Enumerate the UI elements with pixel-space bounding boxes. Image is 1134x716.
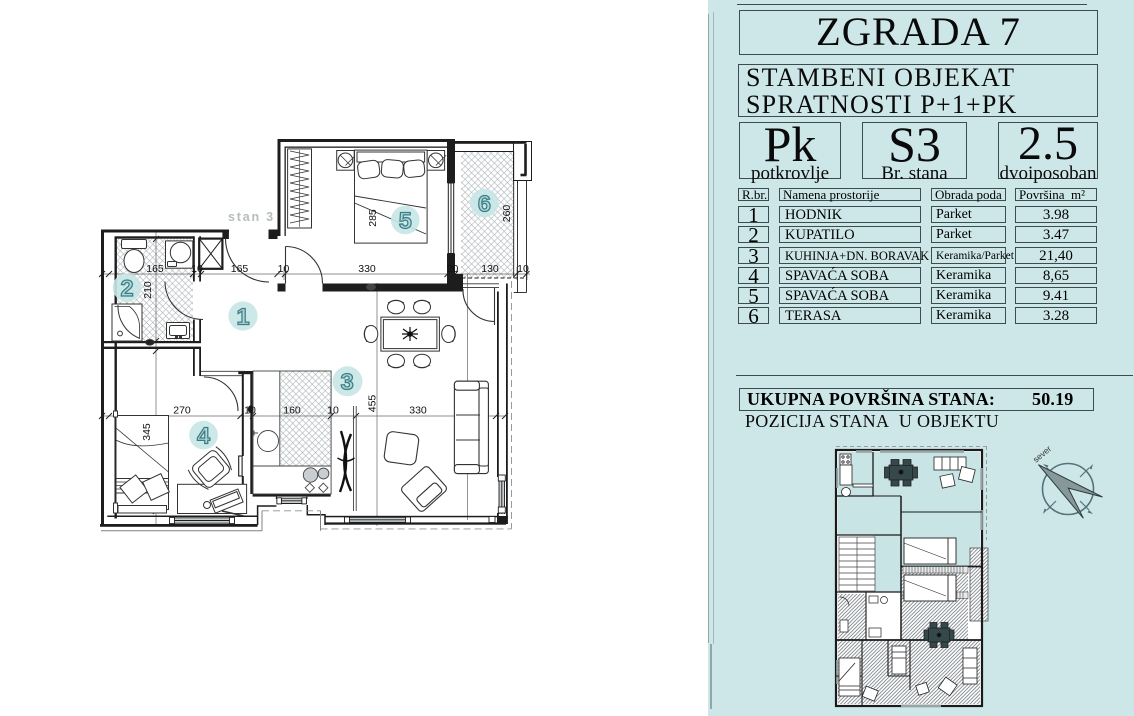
svg-text:stan 3: stan 3: [228, 210, 275, 224]
svg-text:10: 10: [244, 405, 256, 417]
svg-text:330: 330: [409, 405, 427, 417]
svg-text:10: 10: [517, 263, 529, 275]
svg-text:3: 3: [341, 368, 354, 394]
svg-text:130: 130: [481, 263, 499, 275]
svg-text:165: 165: [231, 263, 249, 275]
svg-text:5: 5: [399, 208, 412, 234]
svg-text:270: 270: [173, 405, 191, 417]
svg-text:20: 20: [447, 263, 459, 275]
svg-text:260: 260: [501, 205, 513, 223]
svg-text:160: 160: [283, 405, 301, 417]
svg-text:10: 10: [278, 263, 290, 275]
svg-text:165: 165: [146, 263, 164, 275]
svg-text:4: 4: [197, 423, 210, 449]
svg-text:345: 345: [141, 423, 153, 441]
svg-text:10: 10: [327, 405, 339, 417]
svg-text:2: 2: [120, 275, 133, 301]
svg-text:1: 1: [236, 304, 249, 330]
svg-text:10: 10: [191, 263, 203, 275]
svg-text:210: 210: [142, 281, 154, 299]
svg-text:sever: sever: [1031, 443, 1053, 464]
svg-text:455: 455: [367, 395, 379, 413]
svg-text:330: 330: [358, 263, 376, 275]
svg-text:6: 6: [478, 190, 491, 216]
svg-text:285: 285: [367, 209, 379, 227]
